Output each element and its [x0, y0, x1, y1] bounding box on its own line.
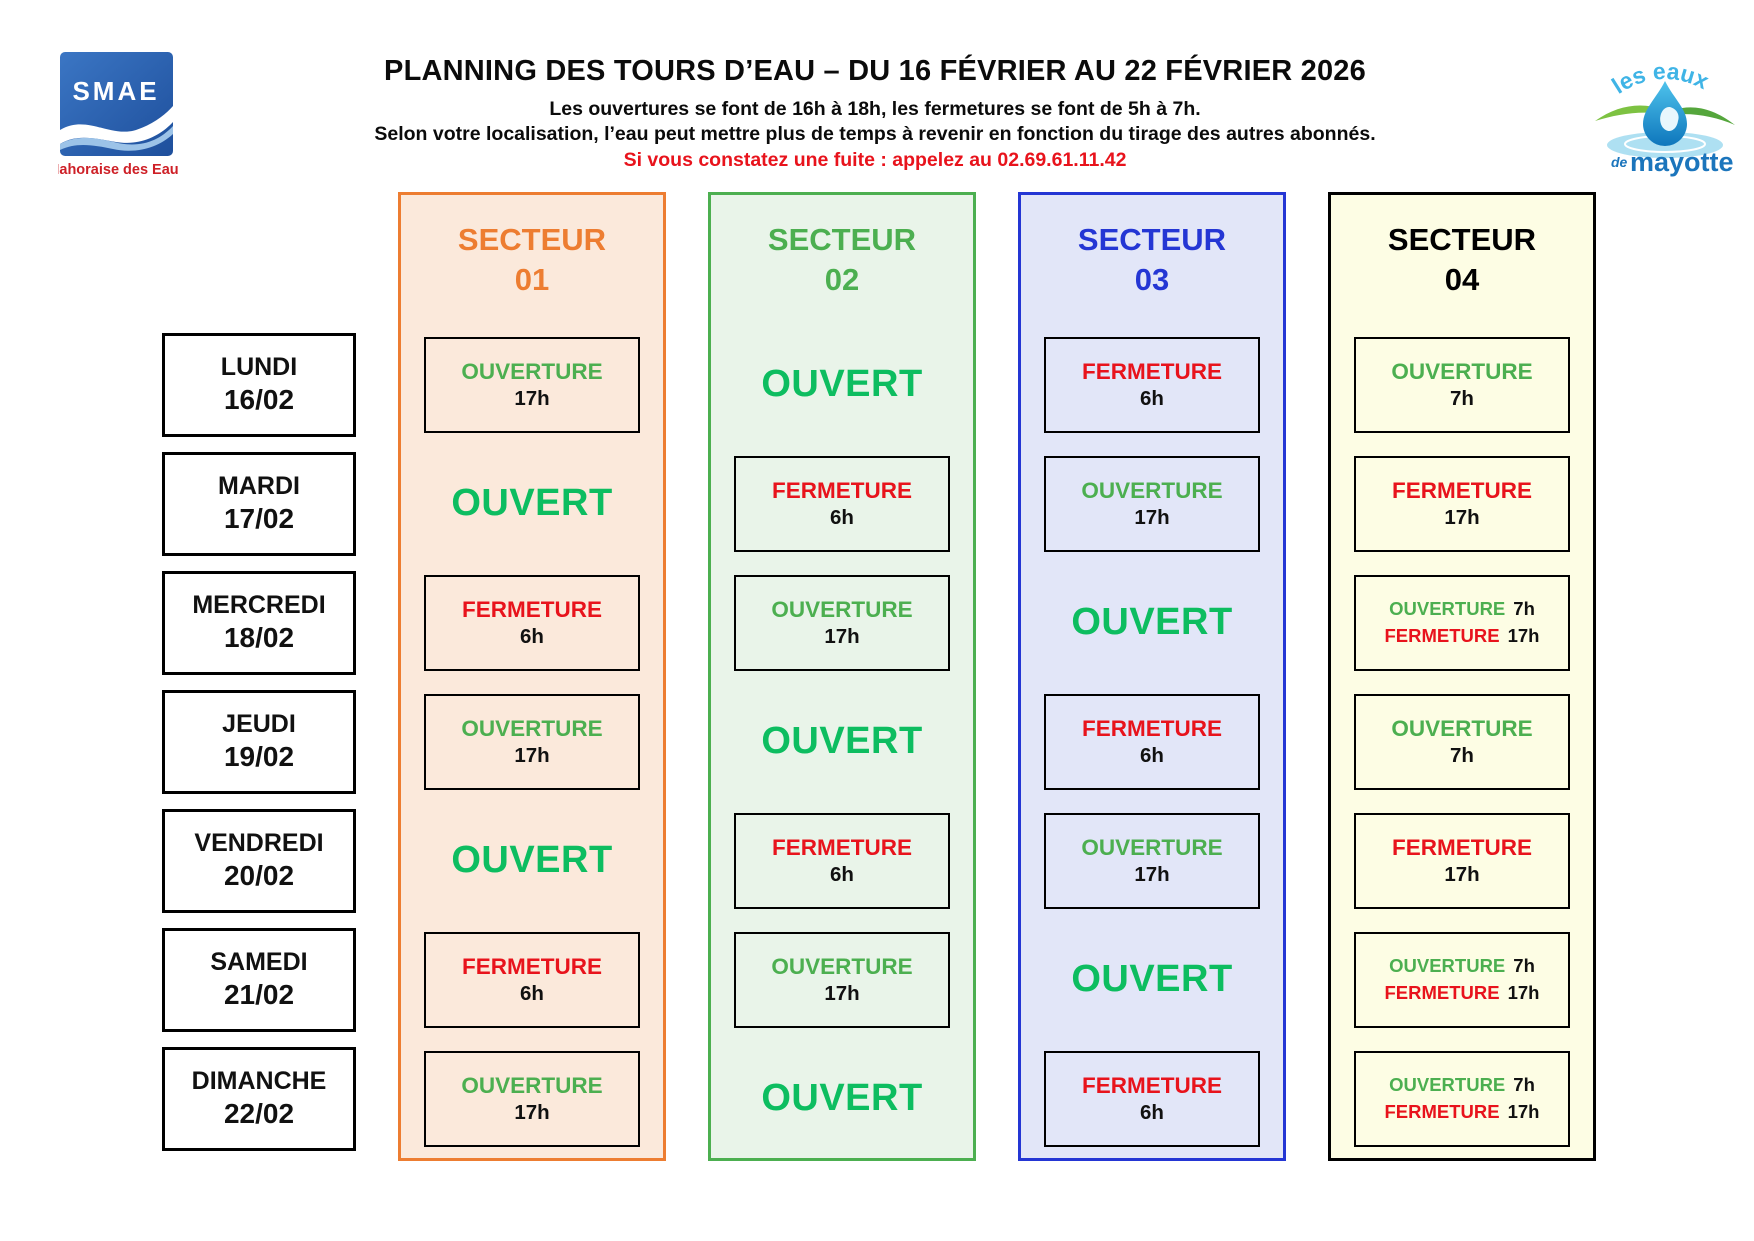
schedule-cell-box: OUVERTURE7h — [1354, 694, 1570, 790]
status-text: FERMETURE — [1082, 1071, 1222, 1100]
schedule-cell-line: 17h — [1134, 505, 1169, 532]
schedule-cell-line: 17h — [824, 981, 859, 1008]
status-text: 6h — [520, 624, 544, 651]
status-text: 7h — [1513, 596, 1535, 623]
schedule-cell: FERMETURE6h — [1021, 325, 1283, 444]
schedule-cell: OUVERTURE17h — [401, 325, 663, 444]
status-text: FERMETURE — [1384, 980, 1499, 1007]
status-text: OUVERT — [1071, 958, 1232, 1001]
schedule-cell-box: OUVERTURE17h — [1044, 813, 1260, 909]
schedule-cell-line: OUVERTURE — [771, 952, 912, 981]
mayotte-logo: les eaux de mayotte — [1585, 45, 1745, 177]
sector-title: SECTEUR — [1388, 220, 1536, 260]
status-text: 17h — [824, 981, 859, 1008]
page-title: PLANNING DES TOURS D’EAU – DU 16 FÉVRIER… — [185, 55, 1565, 88]
schedule-cell-line: FERMETURE — [772, 833, 912, 862]
schedule-cell-line: FERMETURE17h — [1384, 623, 1539, 650]
subtitle-note: Selon votre localisation, l’eau peut met… — [185, 123, 1565, 146]
schedule-cell-box: OUVERTURE7hFERMETURE17h — [1354, 932, 1570, 1028]
schedule-cell-line: FERMETURE — [1082, 714, 1222, 743]
schedule-cell-line: FERMETURE — [1392, 476, 1532, 505]
status-text: FERMETURE — [1082, 714, 1222, 743]
schedule-cell: FERMETURE6h — [711, 801, 973, 920]
schedule-cell: OUVERT — [711, 1039, 973, 1158]
schedule-cell-box: FERMETURE6h — [734, 456, 950, 552]
day-slot: LUNDI16/02 — [162, 325, 356, 444]
schedule-cell-line: 17h — [824, 624, 859, 651]
schedule-cell-line: 17h — [514, 743, 549, 770]
day-column: LUNDI16/02MARDI17/02MERCREDI18/02JEUDI19… — [162, 192, 356, 1158]
sector-header: SECTEUR 03 — [1021, 195, 1283, 325]
mayotte-de-text: de — [1611, 154, 1628, 170]
schedule-cell-box: OUVERTURE17h — [734, 575, 950, 671]
schedule-cell: FERMETURE17h — [1331, 801, 1593, 920]
status-text: 17h — [1134, 862, 1169, 889]
schedule-cell-box: FERMETURE6h — [1044, 1051, 1260, 1147]
schedule-cell-line: 6h — [830, 862, 854, 889]
status-text: 17h — [514, 1100, 549, 1127]
status-text: OUVERTURE — [461, 1071, 602, 1100]
status-text: OUVERT — [451, 839, 612, 882]
schedule-cell-line: OUVERTURE — [1391, 714, 1532, 743]
schedule-cell-line: 6h — [1140, 1100, 1164, 1127]
schedule-cell-line: OUVERTURE — [1391, 357, 1532, 386]
schedule-cell: FERMETURE6h — [711, 444, 973, 563]
sector-title: SECTEUR — [458, 220, 606, 260]
status-text: OUVERTURE — [1081, 476, 1222, 505]
schedule-cell-line: OUVERTURE — [1081, 476, 1222, 505]
schedule-cell-line: OUVERTURE — [461, 357, 602, 386]
schedule-cell-box: OUVERTURE7hFERMETURE17h — [1354, 575, 1570, 671]
schedule-cell-line: FERMETURE — [1082, 357, 1222, 386]
sector-header: SECTEUR 04 — [1331, 195, 1593, 325]
schedule-cell-box: FERMETURE6h — [1044, 694, 1260, 790]
sector-header: SECTEUR 01 — [401, 195, 663, 325]
status-text: OUVERTURE — [1391, 714, 1532, 743]
schedule-cell: OUVERTURE17h — [711, 920, 973, 1039]
schedule-cell-box: OUVERTURE17h — [1044, 456, 1260, 552]
status-text: FERMETURE — [1384, 1099, 1499, 1126]
schedule-cell-line: FERMETURE — [772, 476, 912, 505]
leak-alert: Si vous constatez une fuite : appelez au… — [185, 149, 1565, 172]
schedule-cell: OUVERT — [711, 682, 973, 801]
status-text: 6h — [520, 981, 544, 1008]
schedule-cell-box: OUVERTURE17h — [424, 337, 640, 433]
schedule-cell-line: 6h — [1140, 743, 1164, 770]
schedule-cell-box: FERMETURE6h — [424, 932, 640, 1028]
schedule-cell-box: FERMETURE17h — [1354, 456, 1570, 552]
status-text: OUVERT — [761, 363, 922, 406]
smae-logo: SMAE Mahoraise des Eaux — [58, 52, 178, 177]
mayotte-logo-graphic: les eaux de mayotte — [1585, 45, 1745, 177]
status-text: 17h — [1508, 980, 1540, 1007]
status-text: OUVERT — [451, 482, 612, 525]
status-text: OUVERTURE — [461, 714, 602, 743]
sector-column-01: SECTEUR 01 OUVERTURE17hOUVERTFERMETURE6h… — [398, 192, 666, 1161]
day-name: MERCREDI — [192, 591, 325, 621]
day-slot: VENDREDI20/02 — [162, 801, 356, 920]
day-column-spacer — [162, 192, 356, 325]
schedule-cell: FERMETURE6h — [1021, 1039, 1283, 1158]
day-name: MARDI — [218, 472, 300, 502]
status-text: 17h — [1508, 1099, 1540, 1126]
schedule-cell-line: 6h — [830, 505, 854, 532]
sector-column-03: SECTEUR 03 FERMETURE6hOUVERTURE17hOUVERT… — [1018, 192, 1286, 1161]
schedule-cell: OUVERT — [401, 444, 663, 563]
day-label: SAMEDI21/02 — [162, 928, 356, 1032]
day-name: JEUDI — [222, 710, 296, 740]
header: PLANNING DES TOURS D’EAU – DU 16 FÉVRIER… — [185, 55, 1565, 172]
schedule-cell: OUVERTURE7hFERMETURE17h — [1331, 563, 1593, 682]
day-label: MARDI17/02 — [162, 452, 356, 556]
schedule-cell: OUVERTURE17h — [711, 563, 973, 682]
schedule-cell: OUVERTURE17h — [1021, 801, 1283, 920]
schedule-cell: OUVERT — [1021, 920, 1283, 1039]
schedule-cell-line: 17h — [1444, 505, 1479, 532]
schedule-cell: FERMETURE6h — [401, 563, 663, 682]
schedule-cell-line: OUVERT — [451, 839, 612, 882]
day-slot: SAMEDI21/02 — [162, 920, 356, 1039]
status-text: OUVERT — [1071, 601, 1232, 644]
schedule-cell: OUVERTURE7h — [1331, 325, 1593, 444]
status-text: 17h — [514, 743, 549, 770]
schedule-cell-line: OUVERTURE — [771, 595, 912, 624]
sector-column-02: SECTEUR 02 OUVERTFERMETURE6hOUVERTURE17h… — [708, 192, 976, 1161]
day-slot: JEUDI19/02 — [162, 682, 356, 801]
status-text: FERMETURE — [1392, 476, 1532, 505]
day-date: 20/02 — [224, 859, 294, 892]
sector-title: SECTEUR — [1078, 220, 1226, 260]
status-text: 7h — [1450, 743, 1474, 770]
schedule-cell-line: 6h — [520, 981, 544, 1008]
status-text: 6h — [1140, 1100, 1164, 1127]
day-slot: DIMANCHE22/02 — [162, 1039, 356, 1158]
schedule-cell-line: OUVERT — [1071, 601, 1232, 644]
schedule-cell-line: 17h — [1134, 862, 1169, 889]
schedule-cell-line: OUVERTURE — [1081, 833, 1222, 862]
schedule-cell-line: 6h — [520, 624, 544, 651]
status-text: 17h — [1134, 505, 1169, 532]
schedule-cell-line: OUVERTURE7h — [1389, 596, 1535, 623]
schedule-cell-line: FERMETURE — [462, 952, 602, 981]
schedule-cell: OUVERTURE7h — [1331, 682, 1593, 801]
schedule-cell-box: OUVERTURE7h — [1354, 337, 1570, 433]
schedule-cell: OUVERTURE17h — [1021, 444, 1283, 563]
status-text: FERMETURE — [462, 595, 602, 624]
schedule-cell: OUVERTURE7hFERMETURE17h — [1331, 1039, 1593, 1158]
status-text: 17h — [1444, 862, 1479, 889]
day-date: 18/02 — [224, 621, 294, 654]
status-text: OUVERT — [761, 1077, 922, 1120]
sector-number: 01 — [515, 260, 549, 300]
status-text: FERMETURE — [772, 833, 912, 862]
schedule-cell-line: OUVERTURE7h — [1389, 1072, 1535, 1099]
day-date: 19/02 — [224, 740, 294, 773]
status-text: OUVERTURE — [1389, 953, 1505, 980]
sector-cells: OUVERTURE17hOUVERTFERMETURE6hOUVERTURE17… — [401, 325, 663, 1158]
status-text: 6h — [1140, 386, 1164, 413]
schedule-cell-line: OUVERT — [1071, 958, 1232, 1001]
status-text: FERMETURE — [1392, 833, 1532, 862]
status-text: OUVERTURE — [771, 595, 912, 624]
smae-tagline: Mahoraise des Eaux — [58, 162, 178, 177]
schedule-cell: OUVERT — [401, 801, 663, 920]
mayotte-wordmark: mayotte — [1630, 147, 1734, 177]
status-text: 6h — [1140, 743, 1164, 770]
day-date: 22/02 — [224, 1097, 294, 1130]
day-name: VENDREDI — [194, 829, 323, 859]
schedule-cell-line: FERMETURE17h — [1384, 980, 1539, 1007]
status-text: OUVERTURE — [1081, 833, 1222, 862]
day-name: LUNDI — [221, 353, 297, 383]
schedule-cell-box: OUVERTURE7hFERMETURE17h — [1354, 1051, 1570, 1147]
sector-number: 03 — [1135, 260, 1169, 300]
status-text: 6h — [830, 505, 854, 532]
day-label: DIMANCHE22/02 — [162, 1047, 356, 1151]
day-slot: MERCREDI18/02 — [162, 563, 356, 682]
schedule-cell-box: OUVERTURE17h — [734, 932, 950, 1028]
schedule-cell-line: OUVERT — [761, 720, 922, 763]
day-label: JEUDI19/02 — [162, 690, 356, 794]
status-text: FERMETURE — [772, 476, 912, 505]
smae-logo-graphic: SMAE Mahoraise des Eaux — [58, 52, 178, 177]
status-text: 17h — [1444, 505, 1479, 532]
planning-poster: SMAE Mahoraise des Eaux PLANNING DES TOU… — [0, 0, 1754, 1241]
status-text: 17h — [824, 624, 859, 651]
status-text: 7h — [1513, 953, 1535, 980]
sector-cells: OUVERTURE7hFERMETURE17hOUVERTURE7hFERMET… — [1331, 325, 1593, 1158]
status-text: OUVERTURE — [1389, 596, 1505, 623]
schedule-cell: OUVERTURE17h — [401, 682, 663, 801]
day-name: SAMEDI — [210, 948, 307, 978]
status-text: 7h — [1513, 1072, 1535, 1099]
schedule-cell-line: 17h — [514, 1100, 549, 1127]
schedule-board: LUNDI16/02MARDI17/02MERCREDI18/02JEUDI19… — [162, 192, 1596, 1161]
schedule-cell-box: FERMETURE17h — [1354, 813, 1570, 909]
schedule-cell-line: OUVERTURE7h — [1389, 953, 1535, 980]
status-text: 17h — [514, 386, 549, 413]
schedule-cell-line: FERMETURE17h — [1384, 1099, 1539, 1126]
schedule-cell-box: OUVERTURE17h — [424, 1051, 640, 1147]
sector-column-04: SECTEUR 04 OUVERTURE7hFERMETURE17hOUVERT… — [1328, 192, 1596, 1161]
schedule-cell-line: OUVERT — [761, 1077, 922, 1120]
status-text: FERMETURE — [462, 952, 602, 981]
schedule-cell-box: FERMETURE6h — [1044, 337, 1260, 433]
schedule-cell: OUVERT — [711, 325, 973, 444]
status-text: 7h — [1450, 386, 1474, 413]
schedule-cell-box: OUVERTURE17h — [424, 694, 640, 790]
schedule-cell: FERMETURE6h — [1021, 682, 1283, 801]
sector-number: 02 — [825, 260, 859, 300]
schedule-cell: FERMETURE17h — [1331, 444, 1593, 563]
subtitle-hours: Les ouvertures se font de 16h à 18h, les… — [185, 98, 1565, 121]
day-date: 17/02 — [224, 502, 294, 535]
status-text: OUVERTURE — [1389, 1072, 1505, 1099]
status-text: FERMETURE — [1384, 623, 1499, 650]
sector-number: 04 — [1445, 260, 1479, 300]
schedule-cell: OUVERT — [1021, 563, 1283, 682]
status-text: OUVERT — [761, 720, 922, 763]
schedule-cell-line: OUVERTURE — [461, 1071, 602, 1100]
day-date: 16/02 — [224, 383, 294, 416]
status-text: 17h — [1508, 623, 1540, 650]
schedule-cell-line: 6h — [1140, 386, 1164, 413]
status-text: OUVERTURE — [461, 357, 602, 386]
schedule-cell-line: 7h — [1450, 743, 1474, 770]
schedule-cell-line: OUVERT — [451, 482, 612, 525]
schedule-cell: OUVERTURE17h — [401, 1039, 663, 1158]
sector-header: SECTEUR 02 — [711, 195, 973, 325]
sector-title: SECTEUR — [768, 220, 916, 260]
schedule-cell-line: OUVERTURE — [461, 714, 602, 743]
schedule-cell-line: 17h — [1444, 862, 1479, 889]
sector-cells: FERMETURE6hOUVERTURE17hOUVERTFERMETURE6h… — [1021, 325, 1283, 1158]
day-slot: MARDI17/02 — [162, 444, 356, 563]
schedule-cell-box: FERMETURE6h — [734, 813, 950, 909]
smae-wordmark: SMAE — [72, 76, 159, 106]
schedule-cell-line: FERMETURE — [1082, 1071, 1222, 1100]
status-text: 6h — [830, 862, 854, 889]
status-text: OUVERTURE — [771, 952, 912, 981]
schedule-cell-line: FERMETURE — [1392, 833, 1532, 862]
day-label: MERCREDI18/02 — [162, 571, 356, 675]
schedule-cell-line: OUVERT — [761, 363, 922, 406]
day-label: VENDREDI20/02 — [162, 809, 356, 913]
schedule-cell-box: FERMETURE6h — [424, 575, 640, 671]
schedule-cell-line: 7h — [1450, 386, 1474, 413]
schedule-cell: FERMETURE6h — [401, 920, 663, 1039]
sector-cells: OUVERTFERMETURE6hOUVERTURE17hOUVERTFERME… — [711, 325, 973, 1158]
schedule-cell: OUVERTURE7hFERMETURE17h — [1331, 920, 1593, 1039]
schedule-cell-line: 17h — [514, 386, 549, 413]
day-name: DIMANCHE — [192, 1067, 327, 1097]
day-label: LUNDI16/02 — [162, 333, 356, 437]
schedule-cell-line: FERMETURE — [462, 595, 602, 624]
status-text: OUVERTURE — [1391, 357, 1532, 386]
status-text: FERMETURE — [1082, 357, 1222, 386]
day-date: 21/02 — [224, 978, 294, 1011]
